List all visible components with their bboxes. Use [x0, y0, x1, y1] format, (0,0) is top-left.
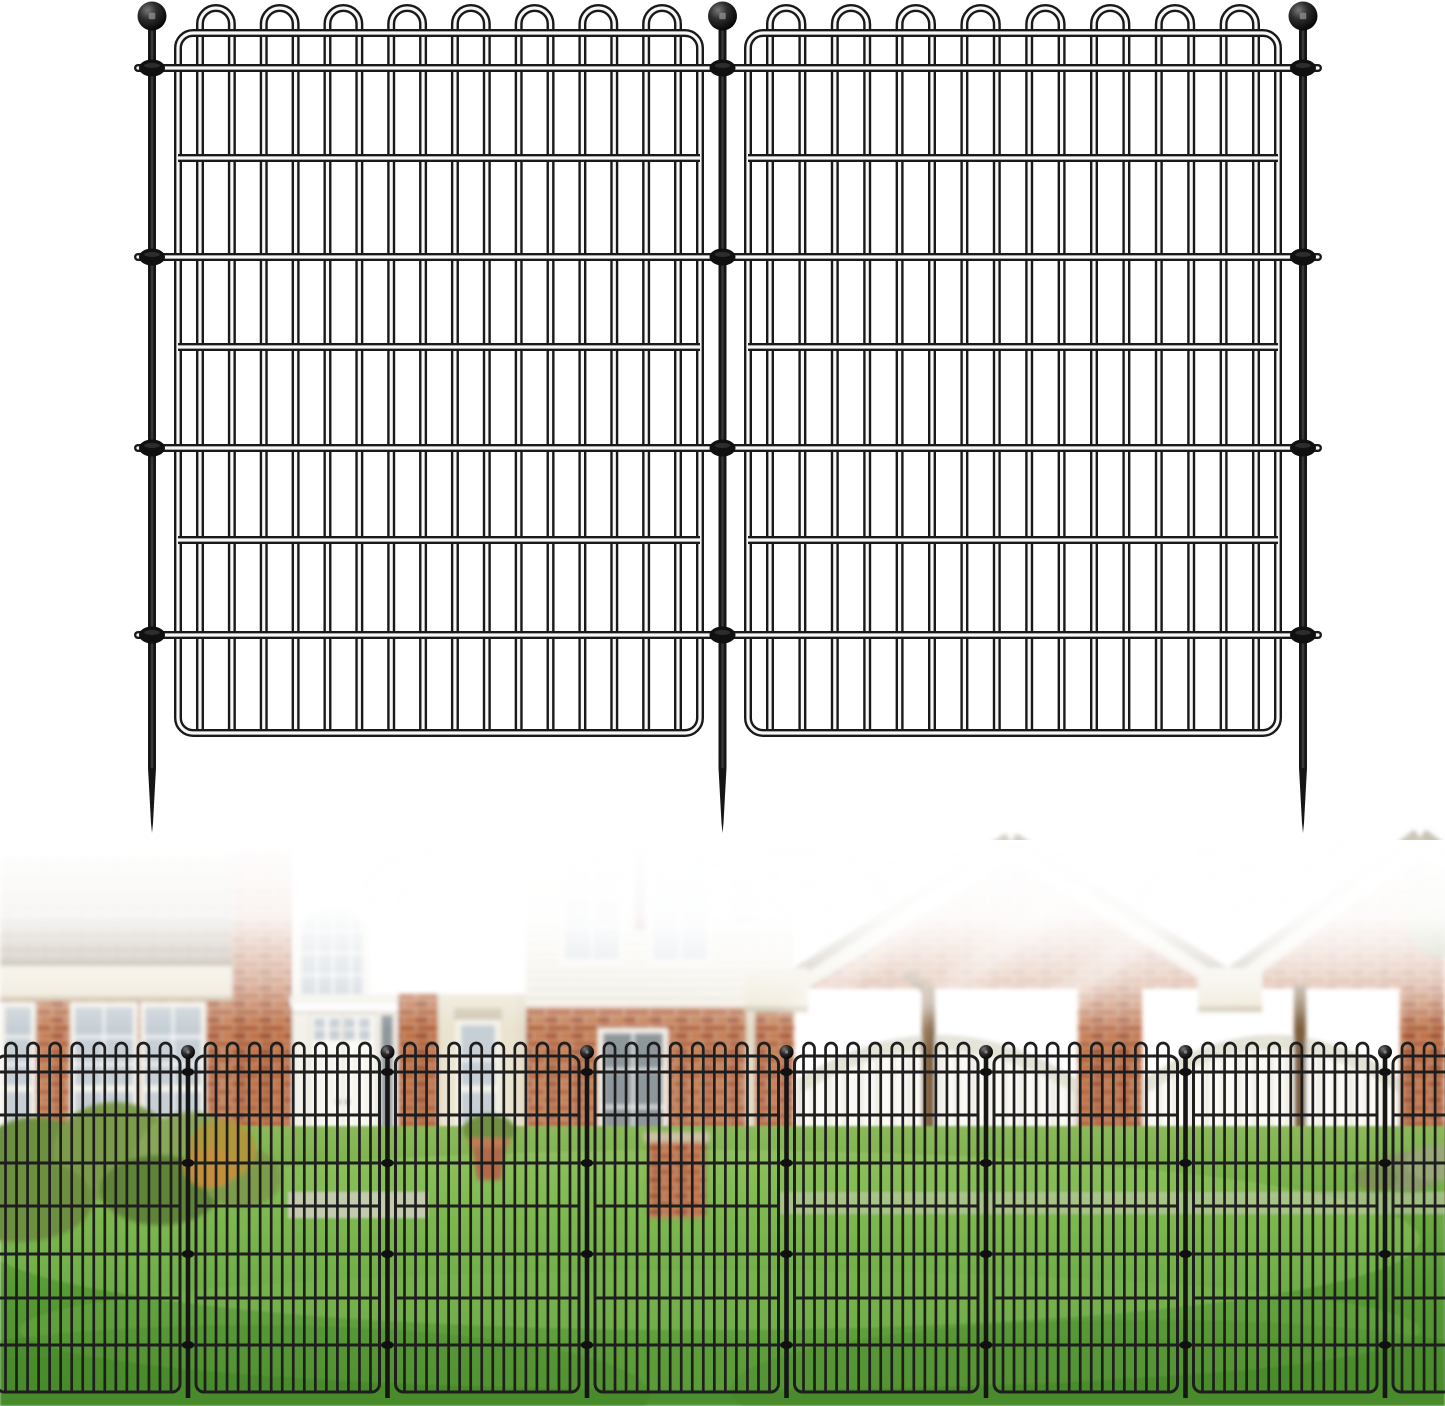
scene-svg [0, 0, 1445, 1406]
post-ball-finials [138, 2, 1318, 31]
post-collars [139, 60, 1316, 644]
fence-posts [148, 29, 1307, 833]
illustration-fence [138, 2, 1319, 834]
fence-panel [748, 8, 1278, 733]
post-ground-spike [148, 768, 156, 833]
fence-panel [178, 8, 700, 733]
garden-fence-product-image [0, 0, 1445, 1406]
fence-connecting-rails [138, 68, 1318, 635]
